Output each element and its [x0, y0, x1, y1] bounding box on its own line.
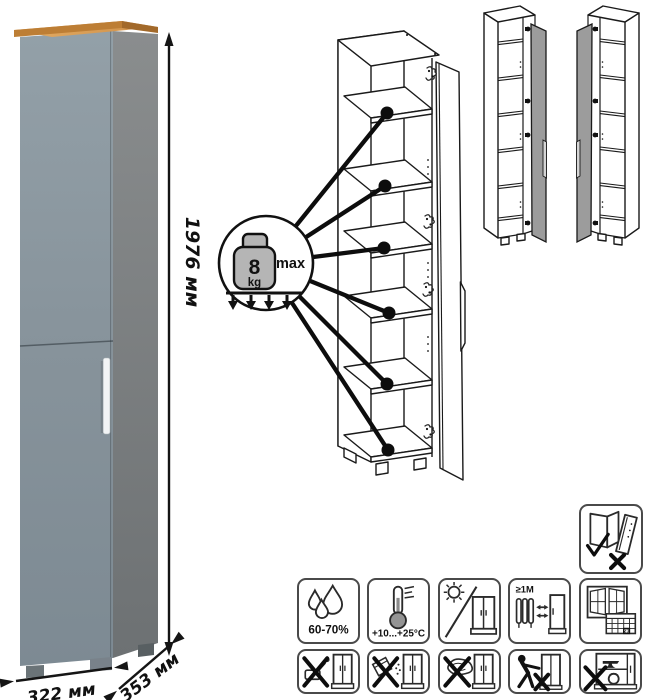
variant-door-panel — [531, 24, 546, 242]
width-label: 322 мм — [26, 679, 97, 700]
max-load-badge: 8 kg max — [219, 216, 313, 310]
height-label: 1976 мм — [181, 217, 203, 308]
variant-door-handle — [543, 140, 547, 178]
radiator-icon — [517, 599, 534, 623]
no-abrasive-powder-icon — [367, 649, 430, 694]
ventilation-calendar-icon: 21 — [579, 578, 642, 644]
door-handle-drawing — [460, 282, 465, 351]
temperature-icon: +10...+25°C — [367, 578, 430, 644]
no-direct-sunlight-icon — [438, 578, 501, 644]
temperature-label: +10...+25°C — [372, 628, 425, 639]
person-icon — [518, 655, 539, 687]
cabinet-drawing — [338, 31, 465, 480]
open-door — [436, 62, 465, 480]
heat-distance-label: ≥1М — [516, 584, 534, 594]
cabinet-glyph — [473, 655, 495, 689]
max-load-value: 8 — [249, 256, 261, 279]
heat-distance-icon: ≥1М — [508, 578, 571, 644]
cabinet-side — [113, 31, 158, 658]
x-mark — [611, 555, 624, 568]
variant-shelves — [498, 39, 523, 221]
kettlebell-icon — [609, 674, 619, 684]
sun-icon — [444, 582, 465, 603]
no-wet-sponge-icon — [438, 649, 501, 694]
calendar-icon: 21 — [606, 614, 635, 635]
exploded-diagram: 8 kg max — [210, 10, 480, 510]
door-variant-hinged-left — [577, 6, 640, 245]
humidity-label: 60-70% — [308, 623, 349, 636]
product-photo: 1976 мм 322 мм 353 мм — [0, 0, 215, 700]
depth-label: 353 мм — [116, 649, 183, 700]
cabinet-glyph — [402, 655, 424, 689]
door-handle — [103, 358, 110, 434]
humidity-icon: 60-70% — [297, 578, 360, 644]
calendar-day: 21 — [624, 629, 630, 635]
cabinet-glyph — [471, 597, 496, 634]
door-mounting-check-icon — [579, 504, 643, 574]
no-heavy-load-icon — [579, 649, 642, 694]
door-variant-hinged-right — [484, 6, 547, 245]
distance-arrows — [536, 605, 548, 618]
door-variants — [475, 2, 648, 254]
no-dragging-icon — [508, 649, 571, 694]
cabinet-front — [20, 31, 113, 667]
cabinet-glyph — [549, 595, 566, 633]
open-window-icon — [588, 587, 627, 618]
max-load-qualifier: max — [276, 256, 305, 272]
variant-hinges — [525, 27, 530, 226]
max-load-unit: kg — [248, 277, 261, 289]
product-sheet: 1976 мм 322 мм 353 мм — [0, 0, 648, 700]
cabinet-photo — [14, 21, 158, 678]
cabinet-glyph — [332, 655, 354, 689]
height-dimension: 1976 мм — [165, 32, 204, 656]
no-solvents-icon — [297, 649, 360, 694]
